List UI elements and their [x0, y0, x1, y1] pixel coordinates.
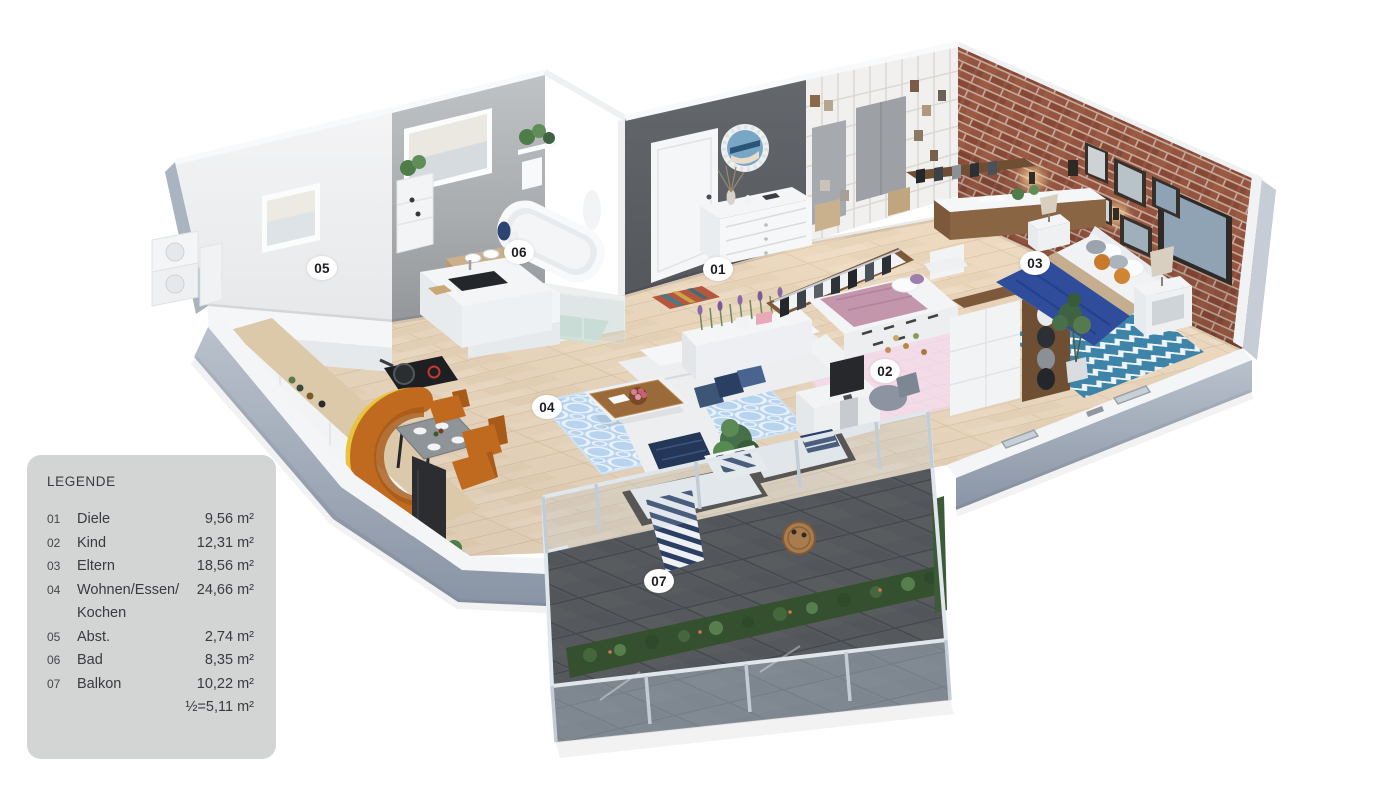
legend-panel: LEGENDE 01 Diele 9,56 m² 02 Kind 12,31 m… — [27, 455, 276, 759]
legend-row: 02 Kind 12,31 m² — [47, 532, 254, 556]
room-area: 12,31 m² — [197, 532, 254, 556]
room-name: Eltern — [77, 555, 197, 579]
room-number: 07 — [47, 673, 77, 697]
room-number: 02 — [47, 532, 77, 556]
room-label-06: 06 — [504, 240, 534, 264]
legend-row: 07 Balkon 10,22 m² — [47, 673, 254, 697]
screenshot-root: 01 02 03 04 05 06 07 LEGENDE 01 Diele 9,… — [0, 0, 1399, 787]
room-area: 24,66 m² — [197, 579, 254, 603]
room-area: 18,56 m² — [197, 555, 254, 579]
room-number: 01 — [47, 508, 77, 532]
room-name: Bad — [77, 649, 205, 673]
legend-title: LEGENDE — [47, 474, 254, 489]
room-number: 04 — [47, 579, 77, 603]
room-number: 05 — [47, 626, 77, 650]
room-number: 03 — [47, 555, 77, 579]
room-label-01: 01 — [703, 257, 733, 281]
room-area: 8,35 m² — [205, 649, 254, 673]
room-label-05: 05 — [307, 256, 337, 280]
room-area: 2,74 m² — [205, 626, 254, 650]
legend-row: 01 Diele 9,56 m² — [47, 508, 254, 532]
room-name: Abst. — [77, 626, 205, 650]
legend-row: 04 Wohnen/Essen/ Kochen 24,66 m² — [47, 579, 254, 626]
room-area: 10,22 m² — [197, 673, 254, 697]
room-area: 9,56 m² — [205, 508, 254, 532]
legend-row-half-area: ½=5,11 m² — [47, 696, 254, 720]
room-label-04: 04 — [532, 395, 562, 419]
room-label-07: 07 — [644, 569, 674, 593]
legend-row: 03 Eltern 18,56 m² — [47, 555, 254, 579]
legend-rows: 01 Diele 9,56 m² 02 Kind 12,31 m² 03 Elt… — [47, 508, 254, 720]
room-label-03: 03 — [1020, 251, 1050, 275]
legend-row: 05 Abst. 2,74 m² — [47, 626, 254, 650]
room-label-02: 02 — [870, 359, 900, 383]
room-name: Balkon — [77, 673, 197, 697]
legend-row: 06 Bad 8,35 m² — [47, 649, 254, 673]
wicker-table — [783, 522, 815, 554]
room-name: Wohnen/Essen/ Kochen — [77, 579, 197, 626]
room-name: Kind — [77, 532, 197, 556]
round-mirror — [721, 124, 769, 172]
room-name: Diele — [77, 508, 205, 532]
room-area: ½=5,11 m² — [185, 696, 254, 720]
room-number: 06 — [47, 649, 77, 673]
